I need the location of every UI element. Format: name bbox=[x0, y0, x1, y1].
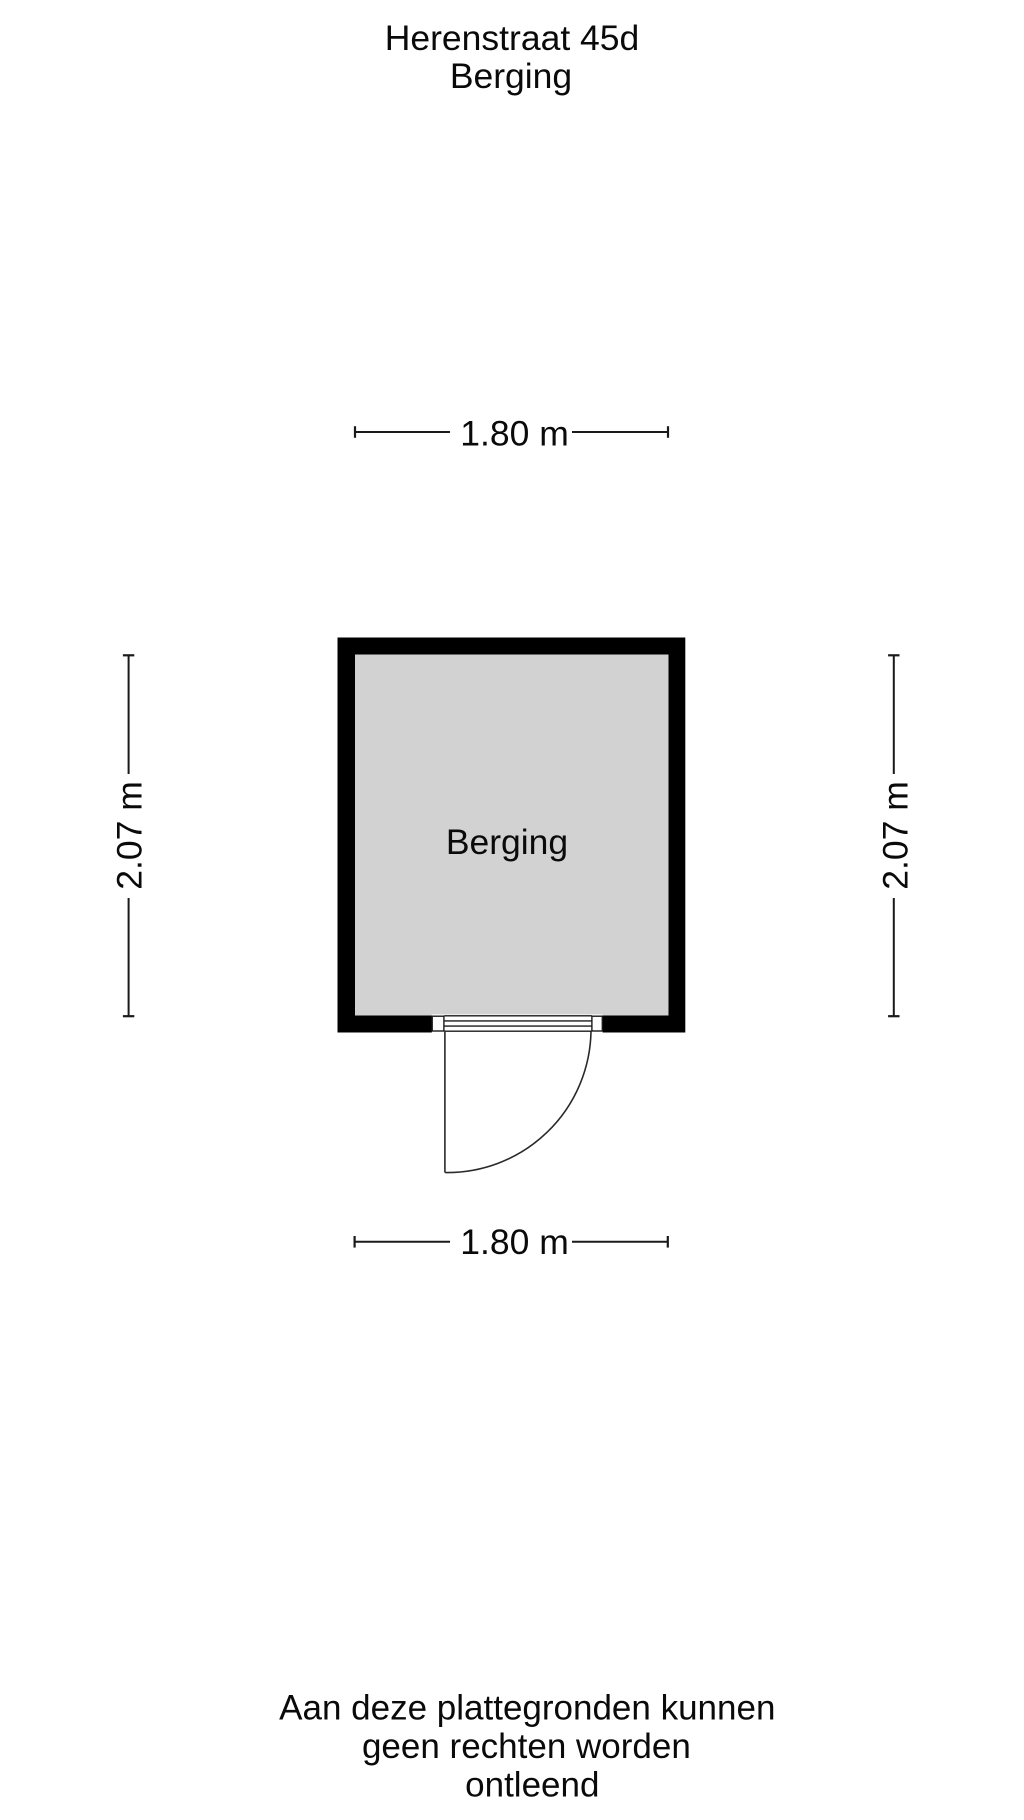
svg-text:2.07 m: 2.07 m bbox=[109, 781, 149, 890]
svg-text:Herenstraat 45d: Herenstraat 45d bbox=[385, 18, 640, 58]
svg-text:Berging: Berging bbox=[450, 56, 572, 96]
svg-text:1.80 m: 1.80 m bbox=[460, 414, 569, 454]
svg-text:Berging: Berging bbox=[446, 822, 568, 862]
svg-text:2.07 m: 2.07 m bbox=[876, 781, 916, 890]
svg-text:1.80 m: 1.80 m bbox=[460, 1222, 569, 1262]
svg-text:ontleend: ontleend bbox=[465, 1765, 599, 1804]
svg-text:geen rechten worden: geen rechten worden bbox=[362, 1727, 691, 1766]
svg-text:Aan deze plattegronden kunnen: Aan deze plattegronden kunnen bbox=[279, 1688, 775, 1727]
